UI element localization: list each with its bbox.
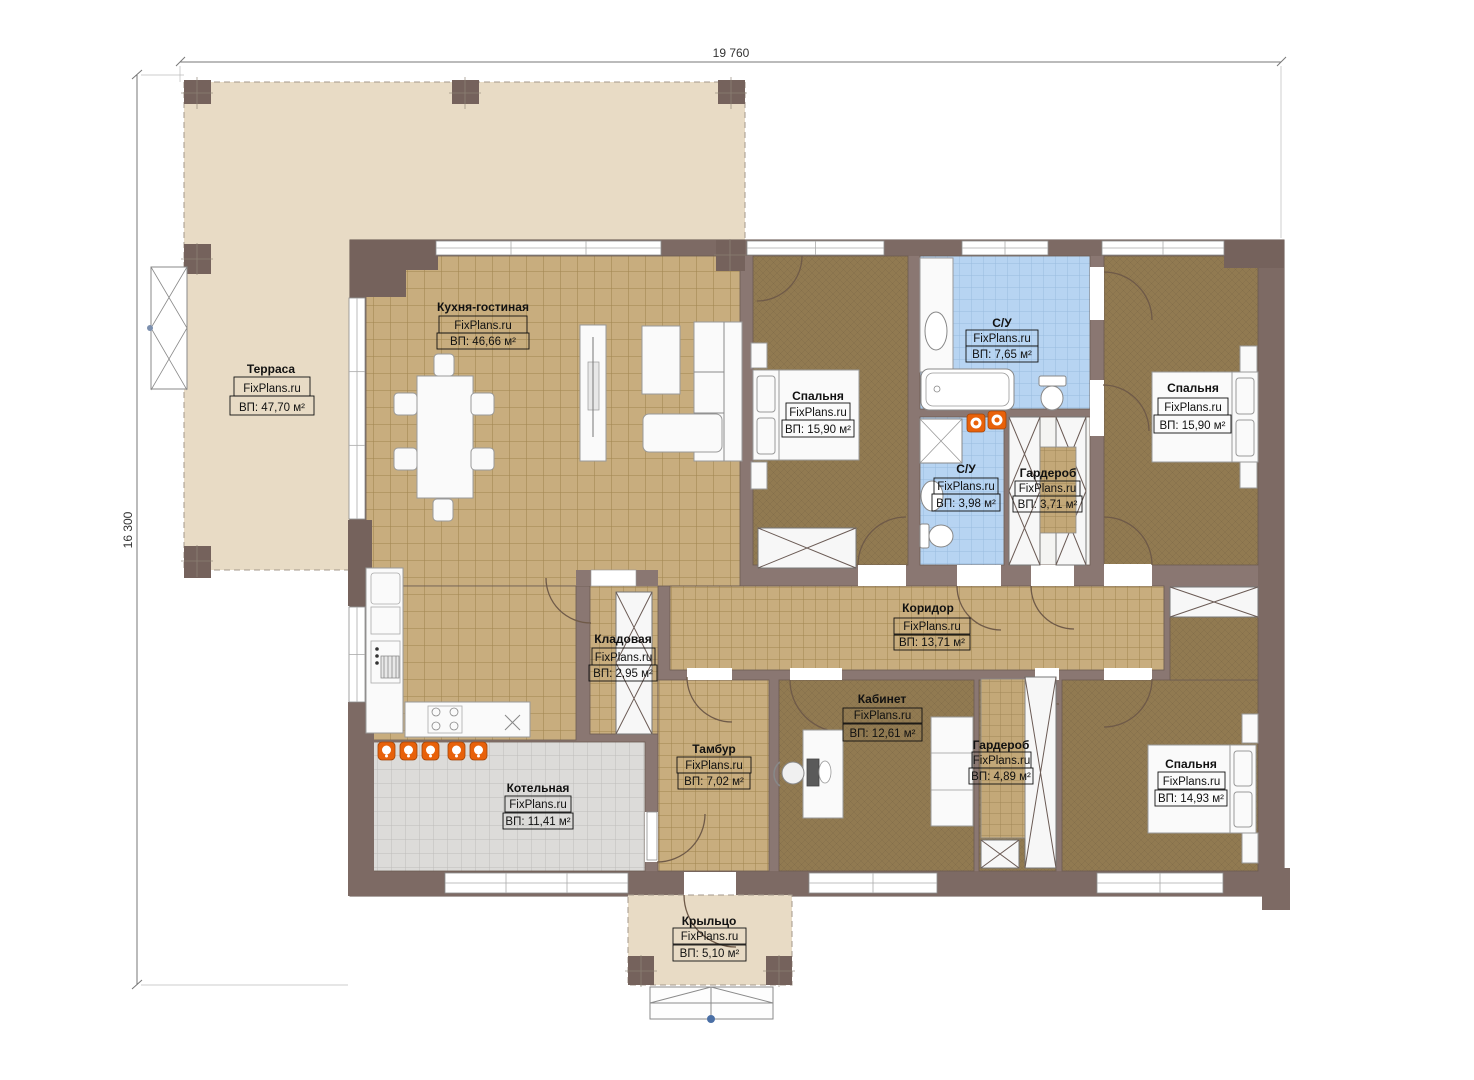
svg-text:FixPlans.ru: FixPlans.ru [595, 652, 653, 664]
svg-text:Кабинет: Кабинет [858, 692, 907, 706]
svg-text:FixPlans.ru: FixPlans.ru [454, 320, 512, 332]
svg-text:ВП: 4,89 м²: ВП: 4,89 м² [971, 771, 1031, 783]
svg-text:FixPlans.ru: FixPlans.ru [1164, 402, 1222, 414]
svg-text:FixPlans.ru: FixPlans.ru [903, 621, 961, 633]
svg-text:FixPlans.ru: FixPlans.ru [1019, 483, 1077, 495]
svg-text:FixPlans.ru: FixPlans.ru [685, 760, 743, 772]
svg-text:16 300: 16 300 [121, 511, 135, 548]
svg-text:Кухня-гостиная: Кухня-гостиная [437, 300, 529, 314]
svg-text:ВП: 7,65 м²: ВП: 7,65 м² [972, 349, 1032, 361]
svg-text:Спальня: Спальня [1165, 757, 1217, 771]
svg-text:Котельная: Котельная [507, 781, 570, 795]
svg-text:Спальня: Спальня [1167, 381, 1219, 395]
svg-text:FixPlans.ru: FixPlans.ru [681, 931, 739, 943]
svg-text:Крыльцо: Крыльцо [682, 914, 737, 928]
svg-text:ВП: 3,71 м²: ВП: 3,71 м² [1018, 499, 1078, 511]
svg-text:Терраса: Терраса [247, 362, 296, 376]
svg-text:ВП: 46,66 м²: ВП: 46,66 м² [450, 336, 516, 348]
svg-text:ВП: 2,95 м²: ВП: 2,95 м² [593, 668, 653, 680]
svg-text:Гардероб: Гардероб [973, 738, 1030, 752]
svg-text:ВП: 14,93 м²: ВП: 14,93 м² [1158, 793, 1224, 805]
svg-text:FixPlans.ru: FixPlans.ru [789, 407, 847, 419]
svg-text:Гардероб: Гардероб [1020, 466, 1077, 480]
svg-text:ВП: 15,90 м²: ВП: 15,90 м² [1159, 420, 1225, 432]
svg-text:19 760: 19 760 [713, 46, 750, 60]
svg-text:Спальня: Спальня [792, 389, 844, 403]
svg-text:FixPlans.ru: FixPlans.ru [243, 383, 301, 395]
svg-text:ВП: 13,71 м²: ВП: 13,71 м² [899, 637, 965, 649]
svg-text:ВП: 7,02 м²: ВП: 7,02 м² [684, 776, 744, 788]
svg-text:С/У: С/У [956, 462, 976, 476]
svg-text:ВП: 12,61 м²: ВП: 12,61 м² [849, 728, 915, 740]
svg-text:ВП: 47,70 м²: ВП: 47,70 м² [239, 402, 305, 414]
svg-text:FixPlans.ru: FixPlans.ru [854, 710, 912, 722]
svg-text:FixPlans.ru: FixPlans.ru [509, 799, 567, 811]
svg-text:Тамбур: Тамбур [692, 742, 736, 756]
svg-text:FixPlans.ru: FixPlans.ru [937, 481, 995, 493]
svg-text:ВП: 3,98 м²: ВП: 3,98 м² [936, 498, 996, 510]
svg-text:Кладовая: Кладовая [594, 632, 651, 646]
svg-text:FixPlans.ru: FixPlans.ru [973, 755, 1031, 767]
svg-text:FixPlans.ru: FixPlans.ru [973, 333, 1031, 345]
svg-text:С/У: С/У [992, 316, 1012, 330]
svg-text:FixPlans.ru: FixPlans.ru [1163, 776, 1221, 788]
svg-text:ВП: 15,90 м²: ВП: 15,90 м² [785, 424, 851, 436]
svg-text:Коридор: Коридор [902, 601, 954, 615]
svg-text:ВП: 5,10 м²: ВП: 5,10 м² [680, 948, 740, 960]
svg-text:ВП: 11,41 м²: ВП: 11,41 м² [505, 816, 570, 828]
